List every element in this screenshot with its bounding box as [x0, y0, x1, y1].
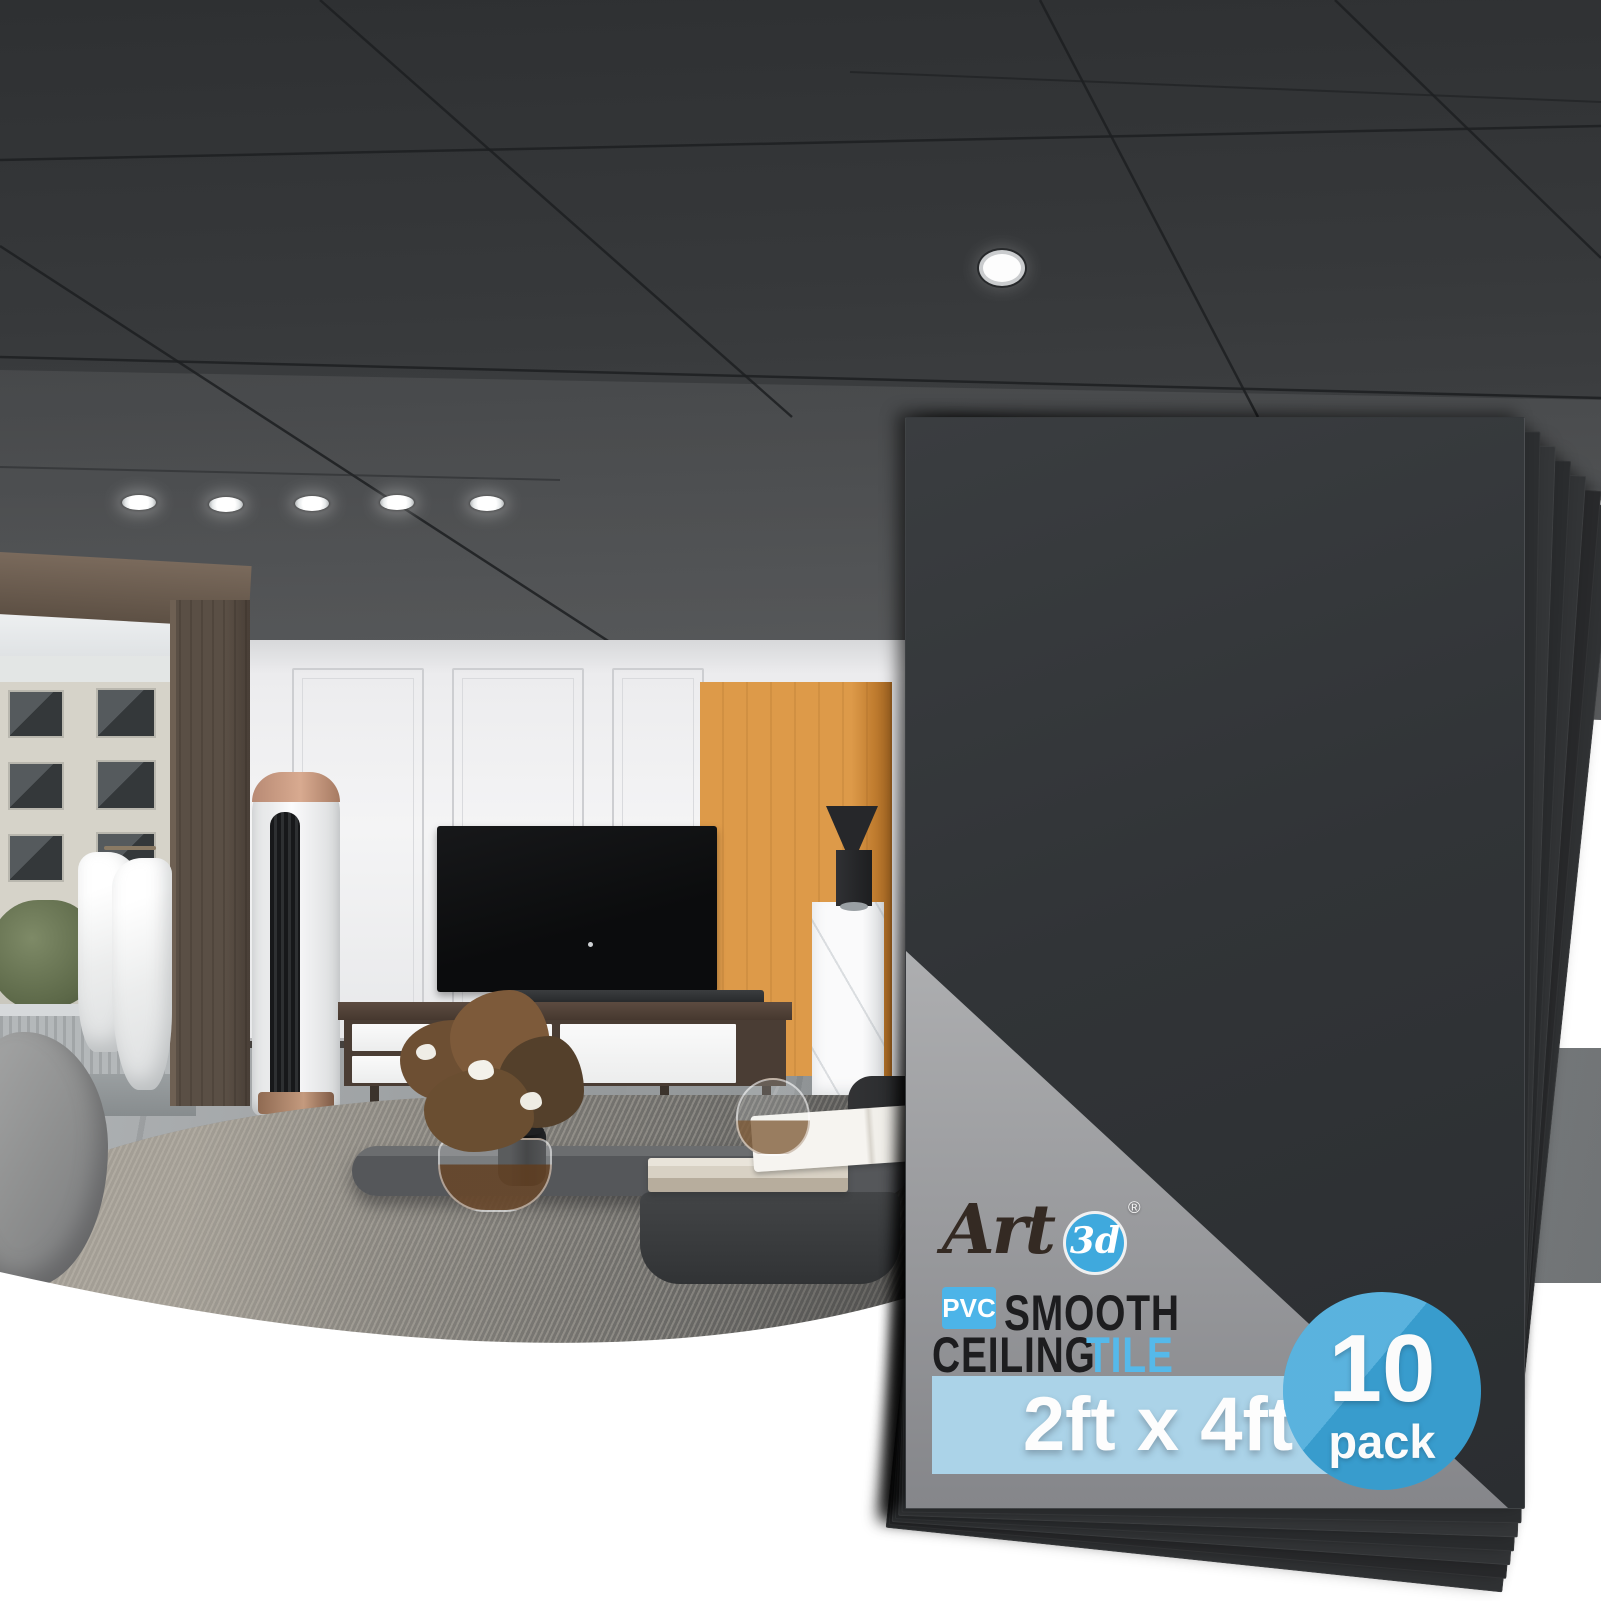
- building-window: [96, 760, 156, 810]
- brand-logo-3d: 3d: [1066, 1214, 1124, 1272]
- registered-trademark: ®: [1128, 1198, 1141, 1218]
- ac-vent: [270, 812, 300, 1112]
- recessed-light-2: [209, 497, 243, 512]
- recessed-light-1: [122, 495, 156, 510]
- recessed-light-4: [380, 495, 414, 510]
- building-window: [8, 762, 64, 810]
- building-window: [96, 688, 156, 738]
- sculpture-ring: [840, 902, 868, 911]
- recessed-downlight: [983, 254, 1021, 282]
- pvc-badge: PVC: [942, 1287, 996, 1329]
- sculpture-body: [836, 850, 872, 906]
- tv-standby-light: [588, 942, 593, 947]
- hanging-shirt-2: [112, 858, 172, 1090]
- tv-screen: [437, 826, 717, 992]
- product-image: Art 3d ® PVC SMOOTH CEILING TILE 2ft x 4…: [0, 0, 1601, 1601]
- brand-logo-art: Art: [942, 1190, 1053, 1270]
- coffee-table-leg: [640, 1192, 900, 1284]
- plant-flower: [468, 1060, 494, 1080]
- marble-pedestal: [812, 902, 884, 1102]
- ac-top-band: [252, 772, 340, 802]
- plant-flower: [416, 1044, 436, 1060]
- recessed-light-3: [295, 496, 329, 511]
- plant-flower: [520, 1092, 542, 1110]
- recessed-light-5: [470, 496, 504, 511]
- plant-foliage: [424, 1068, 534, 1152]
- glass-vase: [736, 1078, 810, 1156]
- ceiling-panel-front: Art 3d ® PVC SMOOTH CEILING TILE 2ft x 4…: [905, 417, 1525, 1509]
- console-wood-top: [338, 1002, 792, 1020]
- building-window: [8, 690, 64, 738]
- pack-word: pack: [1283, 1414, 1481, 1469]
- building-window: [8, 834, 64, 882]
- brand-logo-circle: 3d: [1066, 1214, 1124, 1272]
- hanger: [104, 846, 156, 850]
- wood-pillar: [170, 600, 250, 1106]
- console-door: [560, 1024, 736, 1083]
- pack-count: 10: [1283, 1314, 1481, 1424]
